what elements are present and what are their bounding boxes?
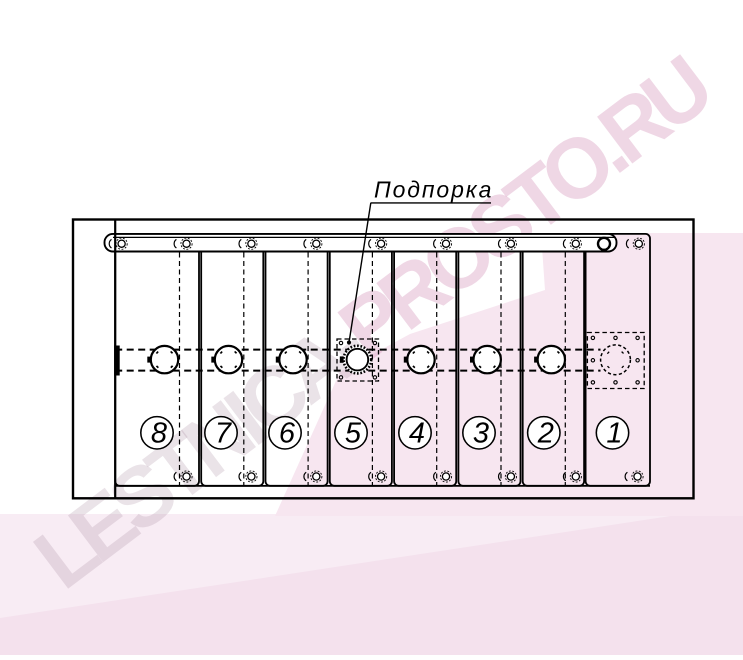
svg-text:Подпорка: Подпорка — [374, 177, 493, 203]
svg-text:5: 5 — [345, 418, 362, 450]
svg-text:1: 1 — [606, 418, 622, 450]
svg-text:2: 2 — [537, 418, 554, 450]
svg-text:6: 6 — [279, 418, 296, 450]
svg-text:7: 7 — [215, 418, 233, 450]
svg-text:3: 3 — [473, 418, 489, 450]
svg-text:4: 4 — [409, 418, 425, 450]
svg-text:8: 8 — [151, 418, 167, 450]
